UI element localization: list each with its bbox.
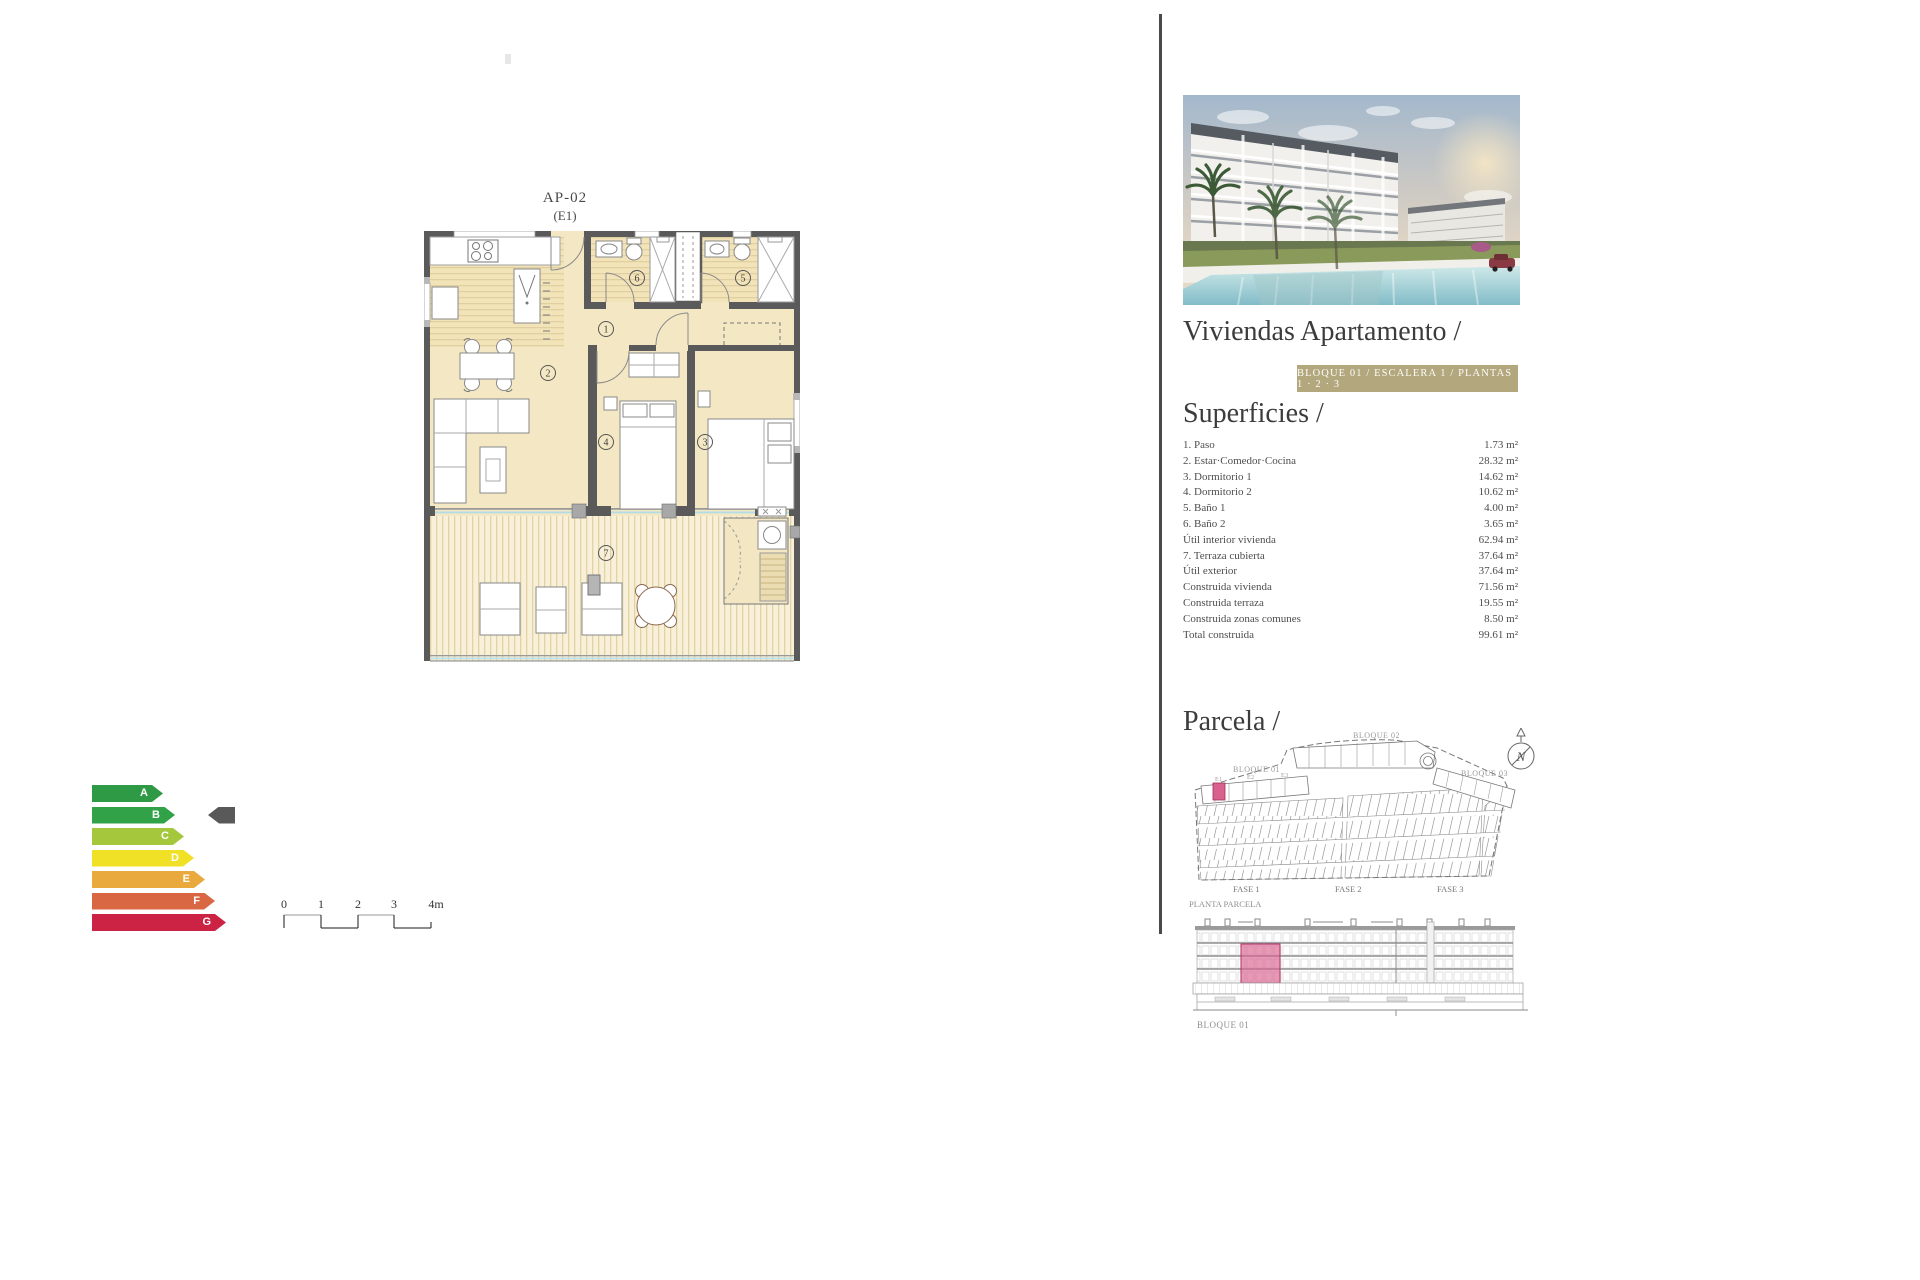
terrace-edge xyxy=(430,655,794,662)
faint-mark xyxy=(505,54,511,64)
scale-3: 3 xyxy=(391,897,397,911)
e3-label: E3 xyxy=(1281,773,1289,779)
row-value: 37.64 m² xyxy=(1479,564,1518,580)
energy-arrow-g: G xyxy=(92,914,226,931)
row-value: 3.65 m² xyxy=(1484,517,1518,533)
vent-shaft xyxy=(675,231,701,302)
terrace-storage xyxy=(724,507,788,604)
room-3-dormitorio1: 3 xyxy=(703,438,708,449)
room-4-dormitorio2: 4 xyxy=(604,438,609,449)
row-label: Útil interior vivienda xyxy=(1183,533,1276,549)
bloque-01-label: BLOQUE 01 xyxy=(1233,765,1280,774)
room-5-bano1: 5 xyxy=(741,274,746,285)
floor-plan-drawing: 1 2 3 4 5 6 7 xyxy=(424,231,800,665)
ground-floor xyxy=(1193,983,1523,994)
row-value: 62.94 m² xyxy=(1479,533,1518,549)
highlighted-unit xyxy=(1213,783,1225,800)
energy-arrow-e: E xyxy=(92,871,205,888)
terrace-pillar xyxy=(588,575,600,595)
row-label: 4. Dormitorio 2 xyxy=(1183,485,1252,501)
table-row: Total construida99.61 m² xyxy=(1183,628,1518,644)
bloque-02-label: BLOQUE 02 xyxy=(1353,731,1400,740)
highlighted-apartment xyxy=(1241,944,1280,983)
row-label: Útil exterior xyxy=(1183,564,1237,580)
roof-chimneys xyxy=(1205,919,1490,926)
superficies-heading: Superficies / xyxy=(1183,398,1324,430)
terrace-table xyxy=(636,585,677,628)
row-label: Construida zonas comunes xyxy=(1183,612,1301,628)
page-title: Viviendas Apartamento / xyxy=(1183,316,1523,348)
building-photo xyxy=(1183,95,1520,305)
floor-plan: 1 2 3 4 5 6 7 xyxy=(424,231,800,665)
row-label: 3. Dormitorio 1 xyxy=(1183,470,1252,486)
energy-arrow-a: A xyxy=(92,785,163,802)
table-row: 5. Baño 14.00 m² xyxy=(1183,501,1518,517)
scale-2: 2 xyxy=(355,897,361,911)
e2-label: E2 xyxy=(1247,775,1255,781)
table-row: 3. Dormitorio 114.62 m² xyxy=(1183,470,1518,486)
block-badge: BLOQUE 01 / ESCALERA 1 / PLANTAS 1 · 2 ·… xyxy=(1297,365,1518,392)
row-value: 99.61 m² xyxy=(1479,628,1518,644)
flowers xyxy=(1471,242,1491,252)
plan-escalera-label: (E1) xyxy=(505,208,625,224)
fase-labels: FASE 1 FASE 2 FASE 3 PLANTA PARCELA xyxy=(1189,884,1464,909)
north-label: N xyxy=(1516,749,1527,764)
energy-arrow-b: B xyxy=(92,807,175,824)
table-row: 6. Baño 23.65 m² xyxy=(1183,517,1518,533)
table-row: 2. Estar·Comedor·Cocina28.32 m² xyxy=(1183,454,1518,470)
scale-bar: 0 1 2 3 4m xyxy=(278,895,453,942)
room-1-paso: 1 xyxy=(604,325,609,336)
base-plinth xyxy=(1193,994,1528,1010)
roof-band xyxy=(1195,926,1515,930)
room-6-bano2: 6 xyxy=(635,274,640,285)
fase-1-label: FASE 1 xyxy=(1233,884,1260,894)
row-label: 1. Paso xyxy=(1183,438,1215,454)
scale-labels: 0 1 2 3 4m xyxy=(281,897,444,911)
site-plan: BLOQUE 01 BLOQUE 02 BLOQUE 03 E1 E2 E3 F… xyxy=(1185,728,1535,910)
energy-arrow-c: C xyxy=(92,828,184,845)
terrace-loungers xyxy=(480,583,622,635)
scale-0: 0 xyxy=(281,897,287,911)
row-value: 37.64 m² xyxy=(1479,549,1518,565)
fase-3-label: FASE 3 xyxy=(1437,884,1464,894)
room-2-estar: 2 xyxy=(546,369,551,380)
row-value: 19.55 m² xyxy=(1479,596,1518,612)
row-value: 71.56 m² xyxy=(1479,580,1518,596)
bloque-03-label: BLOQUE 03 xyxy=(1461,769,1508,778)
scale-1: 1 xyxy=(318,897,324,911)
energy-arrow-f: F xyxy=(92,893,215,910)
building-reflection xyxy=(1253,271,1383,305)
energy-arrow-d: D xyxy=(92,850,194,867)
plan-code-label: AP-02 xyxy=(505,190,625,207)
row-value: 28.32 m² xyxy=(1479,454,1518,470)
building-elevation: BLOQUE 01 xyxy=(1183,918,1543,1036)
north-compass: N xyxy=(1508,728,1534,769)
row-value: 1.73 m² xyxy=(1484,438,1518,454)
table-row: Construida vivienda71.56 m² xyxy=(1183,580,1518,596)
row-value: 8.50 m² xyxy=(1484,612,1518,628)
row-label: Construida terraza xyxy=(1183,596,1264,612)
fase-2-label: FASE 2 xyxy=(1335,884,1362,894)
elevation-bloque-label: BLOQUE 01 xyxy=(1197,1020,1249,1030)
row-label: 2. Estar·Comedor·Cocina xyxy=(1183,454,1296,470)
row-label: 5. Baño 1 xyxy=(1183,501,1225,517)
panel-divider xyxy=(1159,14,1162,934)
row-label: Total construida xyxy=(1183,628,1254,644)
row-label: 6. Baño 2 xyxy=(1183,517,1225,533)
e1-label: E1 xyxy=(1215,777,1223,783)
table-row: 4. Dormitorio 210.62 m² xyxy=(1183,485,1518,501)
row-value: 4.00 m² xyxy=(1484,501,1518,517)
row-value: 10.62 m² xyxy=(1479,485,1518,501)
table-row: Construida terraza19.55 m² xyxy=(1183,596,1518,612)
table-row: Útil interior vivienda62.94 m² xyxy=(1183,533,1518,549)
table-row: 7. Terraza cubierta37.64 m² xyxy=(1183,549,1518,565)
room-7-terraza: 7 xyxy=(604,549,609,560)
superficies-table: 1. Paso1.73 m² 2. Estar·Comedor·Cocina28… xyxy=(1183,438,1518,643)
row-label: Construida vivienda xyxy=(1183,580,1272,596)
row-value: 14.62 m² xyxy=(1479,470,1518,486)
row-label: 7. Terraza cubierta xyxy=(1183,549,1265,565)
planta-parcela-label: PLANTA PARCELA xyxy=(1189,899,1262,909)
table-row: Construida zonas comunes8.50 m² xyxy=(1183,612,1518,628)
table-row: 1. Paso1.73 m² xyxy=(1183,438,1518,454)
table-row: Útil exterior37.64 m² xyxy=(1183,564,1518,580)
scale-4m: 4m xyxy=(428,897,444,911)
